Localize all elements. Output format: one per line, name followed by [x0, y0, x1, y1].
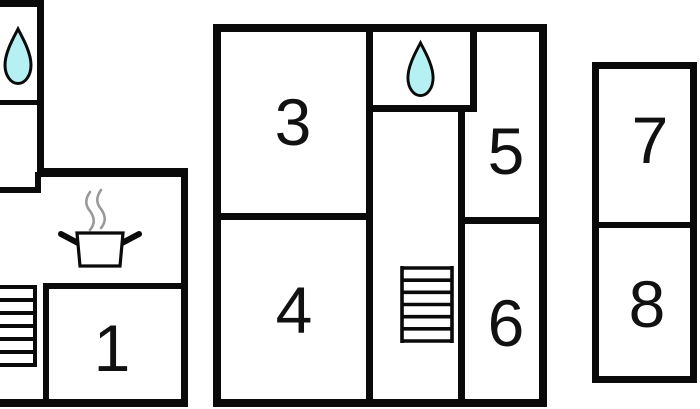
- wall-main-right: [539, 24, 547, 407]
- room-label-3: 3: [275, 89, 312, 155]
- pot-handle-right: [122, 234, 139, 243]
- room-label-5: 5: [488, 118, 525, 184]
- pot-body: [77, 233, 123, 266]
- stairs-icon: [400, 266, 454, 343]
- water-drop-shape: [408, 43, 433, 96]
- pot-handle-left: [61, 234, 78, 243]
- stairs-steps: [402, 266, 452, 343]
- wall-right-top: [592, 62, 697, 69]
- room-label-1: 1: [94, 315, 131, 381]
- wall-room3-room4-divider: [213, 213, 373, 220]
- wall-left-right: [181, 168, 188, 407]
- wall-left-bathroom-divider: [0, 100, 37, 105]
- wall-room1-left: [43, 283, 49, 405]
- wall-left-bottom: [0, 399, 188, 407]
- cooking-pot-icon: [56, 186, 144, 270]
- floor-plan: 1 3 4 5 6 7 8: [0, 0, 700, 409]
- water-drop-icon: [403, 39, 438, 99]
- wall-main-bathroom-right: [470, 24, 477, 112]
- wall-main-top: [213, 24, 547, 32]
- stairs-steps: [0, 285, 36, 367]
- wall-main-vertical-b: [458, 105, 465, 407]
- room-label-7: 7: [632, 107, 669, 173]
- steam-line: [86, 192, 94, 230]
- wall-room5-room6-divider: [458, 217, 547, 224]
- wall-main-bottom: [213, 399, 547, 407]
- wall-room1-top: [43, 283, 182, 289]
- room-label-4: 4: [276, 277, 313, 343]
- steam-line: [97, 190, 105, 228]
- room-label-6: 6: [488, 290, 525, 356]
- room-label-8: 8: [629, 271, 666, 337]
- wall-room7-room8-divider: [592, 222, 697, 228]
- stairs-icon: [0, 285, 38, 367]
- wall-left-top: [38, 168, 188, 177]
- water-drop-shape: [5, 29, 31, 84]
- wall-left-column-right: [37, 0, 44, 177]
- wall-right-bottom: [592, 376, 697, 383]
- water-drop-icon: [1, 25, 35, 87]
